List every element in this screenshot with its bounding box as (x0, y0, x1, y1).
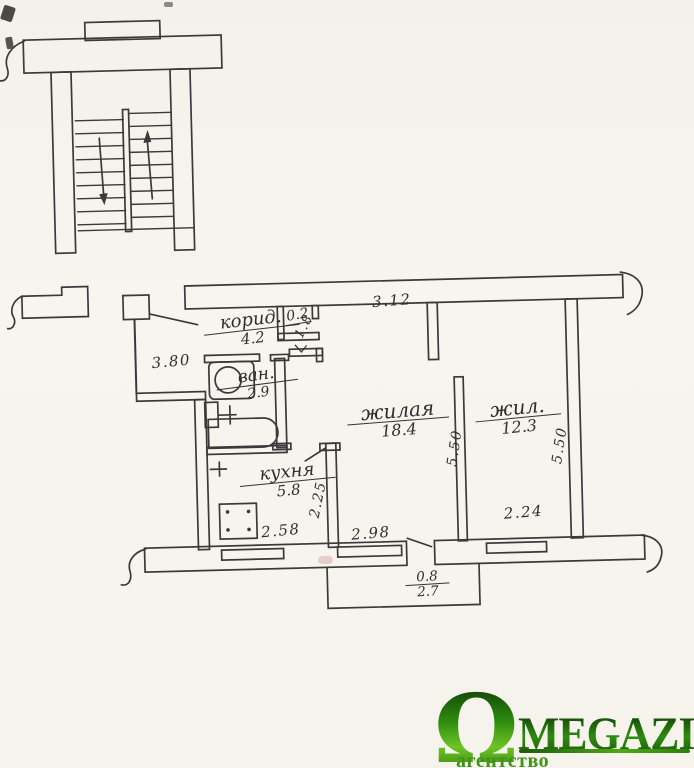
wall-bottom-right (434, 535, 645, 564)
fixture-stove (219, 503, 257, 539)
wall-stub-bedroom (427, 302, 438, 359)
stair-steps-right (129, 112, 174, 217)
stair-steps-left (75, 120, 126, 225)
stair-bottom-line (78, 228, 194, 231)
stair-landing-beam (23, 35, 222, 73)
wall-right (565, 299, 583, 538)
window-living-room (338, 545, 402, 557)
entrance-door-leaf (149, 313, 197, 326)
agency-logo: Ω MEGAZIN агентство недвижимости (434, 680, 692, 768)
fixture-toilet-valve (218, 406, 236, 424)
dimension-top-span: 3.12 (371, 290, 412, 311)
wall-west (195, 399, 210, 549)
dimension-balcony: 0.8 2.7 (405, 568, 451, 601)
dimension-bedroom-width: 2.24 (503, 502, 544, 523)
stair-post-right (170, 69, 195, 250)
balcony-width: 2.7 (406, 584, 451, 602)
window-bedroom (486, 542, 546, 554)
stairwell (0, 19, 227, 255)
room-label-living-room: жилая 18.4 (346, 397, 451, 445)
bathroom-wall-cap-top (270, 354, 288, 360)
scan-artifact (318, 556, 333, 564)
dimension-kitchen-width: 2.58 (260, 520, 301, 542)
wall-bottom-flare-left (121, 549, 147, 585)
dimension-corridor-length: 3.80 (151, 351, 192, 373)
fixture-sink-mark (210, 462, 226, 476)
floor-plan-drawing: корид. 4.2 0.2 ван. 2.9 кухня 5.8 жилая … (0, 0, 694, 768)
scan-artifact (164, 2, 173, 7)
room-label-bedroom: жил. 12.3 (473, 393, 562, 441)
scanned-floor-plan: корид. 4.2 0.2 ван. 2.9 кухня 5.8 жилая … (0, 0, 694, 768)
window-kitchen (222, 549, 284, 561)
logo-tagline: агентство недвижимости (456, 751, 692, 768)
wall-entry-left-segment (22, 287, 89, 319)
entrance-pillar (123, 295, 150, 320)
wall-corridor-left (134, 319, 136, 393)
wall-entry-flare-left (7, 296, 23, 328)
corridor-hook-wall (289, 348, 322, 356)
stair-rail (122, 109, 131, 231)
floor-plan-lines (0, 0, 694, 768)
fixture-stove-burners (226, 510, 251, 532)
dimension-living-room-width: 2.98 (351, 523, 392, 544)
balcony-door-leaf (407, 538, 431, 548)
balcony-outline (327, 563, 480, 608)
stair-post-left (51, 72, 76, 253)
